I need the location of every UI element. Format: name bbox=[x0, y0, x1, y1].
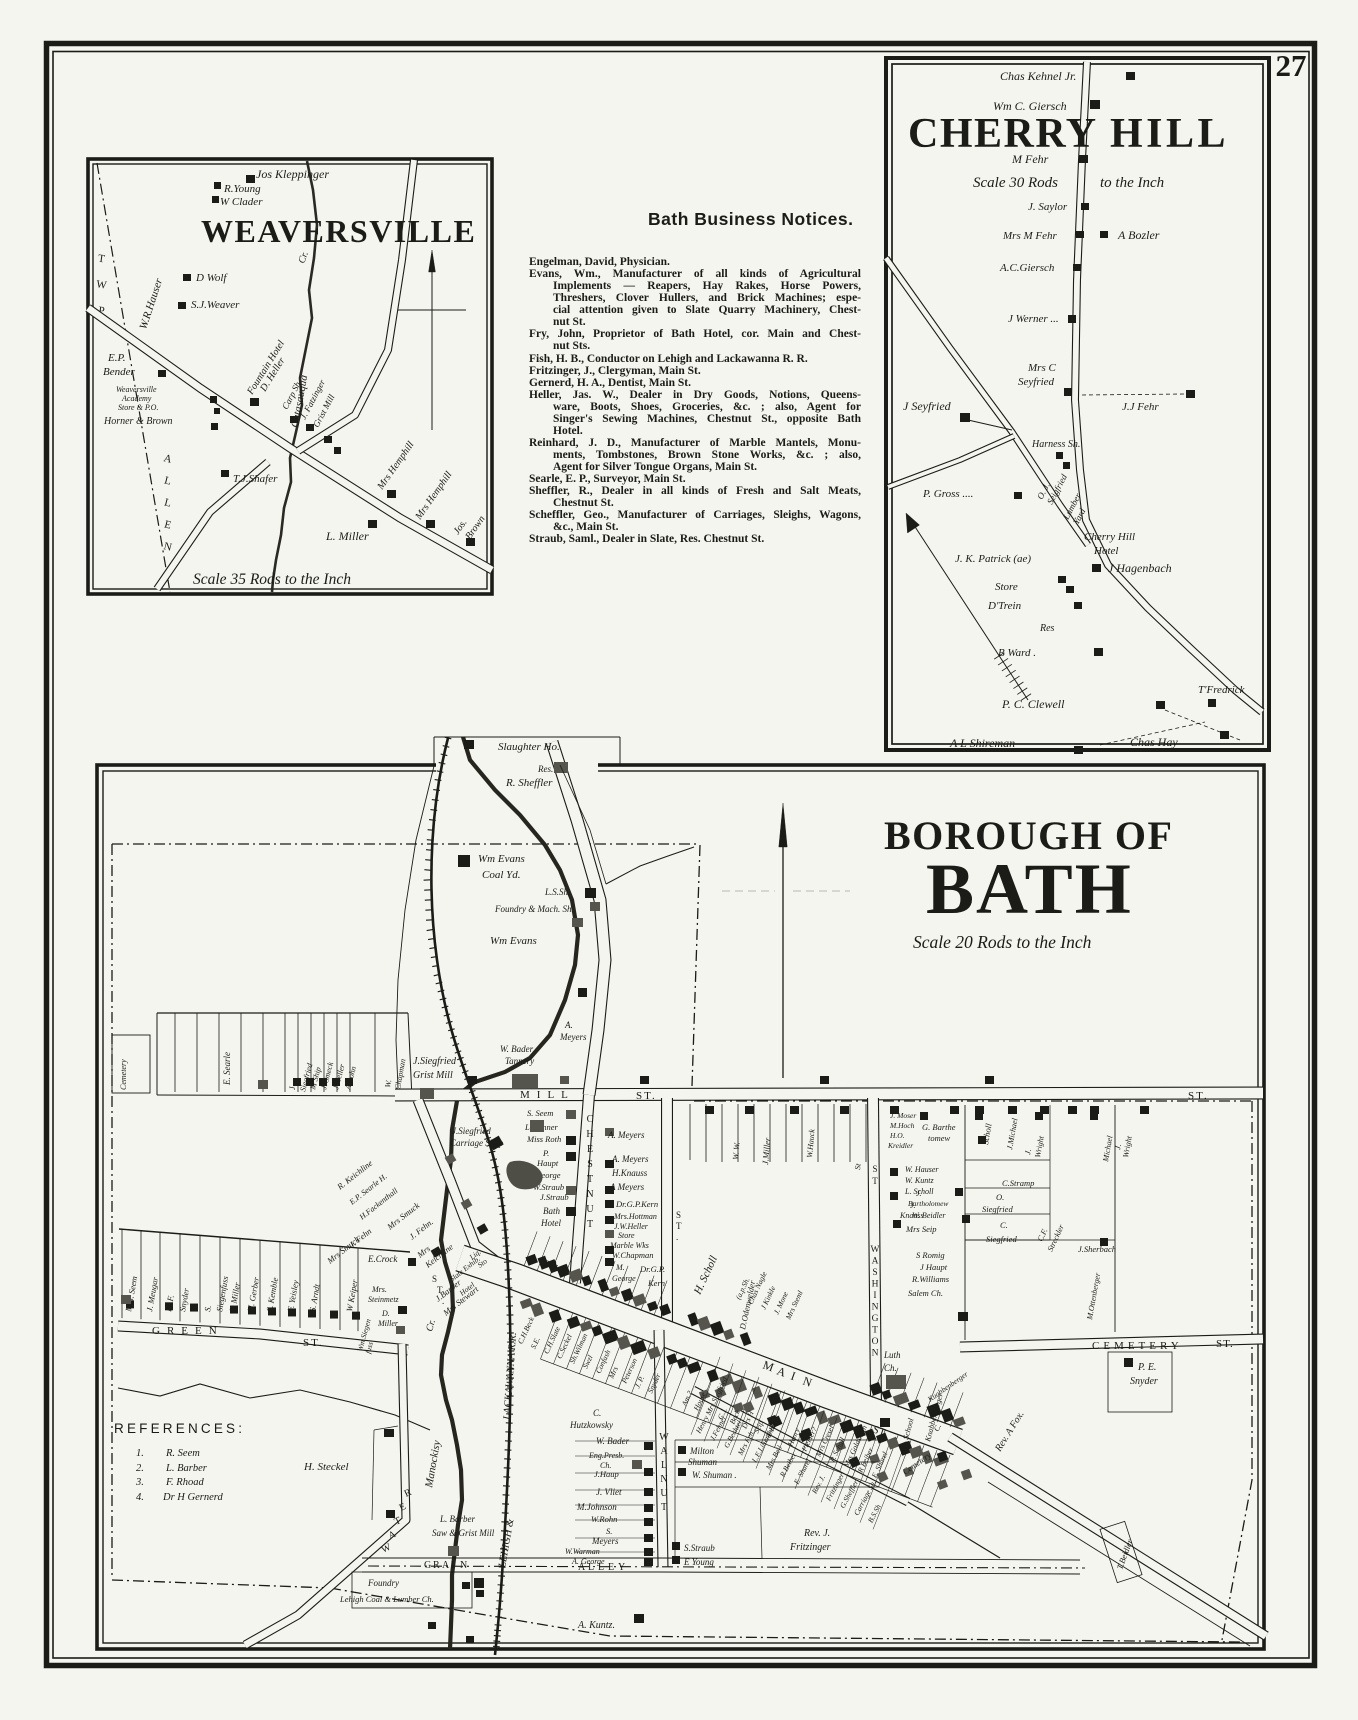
svg-text:Fritzinger: Fritzinger bbox=[789, 1542, 831, 1553]
svg-text:Eng.Presb.: Eng.Presb. bbox=[588, 1451, 624, 1460]
svg-text:J Werner ...: J Werner ... bbox=[1008, 313, 1059, 325]
svg-text:P.O.: P.O. bbox=[543, 1258, 559, 1268]
svg-text:S Romig: S Romig bbox=[916, 1250, 945, 1260]
svg-text:I: I bbox=[873, 1291, 876, 1301]
svg-text:G: G bbox=[424, 1560, 431, 1571]
svg-text:N: N bbox=[872, 1349, 879, 1359]
svg-text:E Young: E Young bbox=[683, 1557, 714, 1567]
svg-text:CEMETERY: CEMETERY bbox=[1092, 1340, 1183, 1352]
svg-text:E.Crock: E.Crock bbox=[367, 1254, 398, 1264]
svg-text:Marble Wks: Marble Wks bbox=[609, 1241, 649, 1250]
svg-text:Milton: Milton bbox=[689, 1446, 714, 1456]
svg-text:L. Barber: L. Barber bbox=[165, 1463, 208, 1474]
svg-text:A.C.Giersch: A.C.Giersch bbox=[999, 262, 1055, 274]
svg-text:MILL: MILL bbox=[520, 1089, 575, 1101]
svg-text:Haupt: Haupt bbox=[536, 1158, 559, 1168]
svg-text:W: W bbox=[659, 1432, 669, 1443]
svg-text:Mrs C: Mrs C bbox=[1027, 362, 1056, 374]
svg-text:O: O bbox=[872, 1337, 879, 1347]
svg-text:T: T bbox=[676, 1221, 682, 1231]
svg-text:Store: Store bbox=[995, 581, 1018, 593]
svg-text:R.Young: R.Young bbox=[223, 183, 261, 195]
svg-text:Weaversville: Weaversville bbox=[116, 385, 157, 394]
svg-text:A Bozler: A Bozler bbox=[1117, 228, 1160, 242]
svg-text:3.: 3. bbox=[135, 1477, 144, 1488]
svg-text:Cherry Hill: Cherry Hill bbox=[1084, 531, 1135, 543]
svg-text:W.Warman: W.Warman bbox=[565, 1547, 600, 1556]
svg-text:Slaughter Ho.: Slaughter Ho. bbox=[498, 741, 560, 753]
svg-text:D Wolf: D Wolf bbox=[195, 272, 228, 284]
svg-text:27: 27 bbox=[1276, 48, 1307, 83]
svg-text:U: U bbox=[660, 1488, 668, 1499]
svg-text:Res: Res bbox=[1039, 623, 1055, 634]
svg-text:P. E.: P. E. bbox=[1137, 1362, 1156, 1373]
svg-text:W. Beidler: W. Beidler bbox=[912, 1211, 946, 1220]
svg-text:ST.: ST. bbox=[303, 1337, 324, 1349]
svg-text:Foundry & Mach. Sh.: Foundry & Mach. Sh. bbox=[494, 904, 574, 914]
svg-text:D.: D. bbox=[381, 1309, 390, 1318]
svg-text:J. Moser: J. Moser bbox=[890, 1111, 916, 1120]
svg-text:Shuman: Shuman bbox=[688, 1457, 717, 1467]
svg-text:Wm Evans: Wm Evans bbox=[490, 935, 537, 947]
svg-text:W. Hauser: W. Hauser bbox=[905, 1165, 939, 1174]
svg-text:George: George bbox=[612, 1274, 636, 1283]
svg-text:J.Siegfried: J.Siegfried bbox=[413, 1056, 457, 1067]
svg-text:T: T bbox=[587, 1219, 593, 1230]
svg-text:E.P.: E.P. bbox=[107, 352, 126, 364]
svg-text:H: H bbox=[586, 1129, 593, 1140]
svg-text:Bartholomew: Bartholomew bbox=[908, 1199, 948, 1208]
svg-text:A: A bbox=[872, 1257, 879, 1267]
svg-text:J Seyfried: J Seyfried bbox=[903, 399, 952, 413]
svg-text:T: T bbox=[872, 1326, 878, 1336]
svg-text:W. Bader: W. Bader bbox=[500, 1044, 534, 1054]
svg-text:W Clader: W Clader bbox=[220, 196, 263, 208]
svg-text:ST.: ST. bbox=[636, 1090, 657, 1102]
svg-text:A Meyers: A Meyers bbox=[609, 1182, 645, 1192]
svg-text:T.J.Shafer: T.J.Shafer bbox=[233, 473, 278, 485]
svg-text:Mrs M Fehr: Mrs M Fehr bbox=[1002, 230, 1057, 242]
svg-text:Wm Evans: Wm Evans bbox=[478, 853, 525, 865]
svg-text:W. Bader: W. Bader bbox=[596, 1436, 630, 1446]
svg-text:J Hagenbach: J Hagenbach bbox=[1108, 561, 1172, 575]
svg-text:N: N bbox=[586, 1189, 593, 1200]
svg-text:Mrs.Hottman: Mrs.Hottman bbox=[613, 1212, 657, 1221]
svg-text:C.Stramp: C.Stramp bbox=[1002, 1178, 1034, 1188]
svg-text:G. Barthe: G. Barthe bbox=[922, 1122, 956, 1132]
svg-text:Kern: Kern bbox=[647, 1278, 665, 1288]
svg-text:E. Searle: E. Searle bbox=[222, 1052, 232, 1086]
svg-text:S.Straub: S.Straub bbox=[684, 1543, 715, 1553]
svg-text:Kreidler: Kreidler bbox=[887, 1141, 913, 1150]
svg-text:Hutzkowsky: Hutzkowsky bbox=[569, 1420, 613, 1430]
svg-text:Rev. J.: Rev. J. bbox=[803, 1528, 830, 1539]
svg-text:Bath: Bath bbox=[543, 1206, 560, 1216]
svg-text:ST.: ST. bbox=[1188, 1090, 1209, 1102]
svg-text:H. Steckel: H. Steckel bbox=[303, 1461, 349, 1473]
svg-text:Grist Mill: Grist Mill bbox=[413, 1070, 453, 1081]
svg-text:J.: J. bbox=[916, 1189, 922, 1198]
svg-text:J.Haup: J.Haup bbox=[594, 1469, 619, 1479]
svg-text:W. W.: W. W. bbox=[731, 1142, 742, 1161]
svg-text:J. Saylor: J. Saylor bbox=[1028, 201, 1068, 213]
svg-text:Horner & Brown: Horner & Brown bbox=[103, 416, 173, 427]
svg-text:Saw & Grist Mill: Saw & Grist Mill bbox=[432, 1528, 495, 1538]
svg-text:J. K. Patrick (ae): J. K. Patrick (ae) bbox=[955, 553, 1031, 565]
svg-text:S. Seem: S. Seem bbox=[527, 1108, 553, 1118]
svg-text:T: T bbox=[661, 1502, 667, 1513]
svg-text:W. Kuntz: W. Kuntz bbox=[905, 1176, 934, 1185]
svg-text:L: L bbox=[598, 1562, 604, 1573]
svg-text:Res.: Res. bbox=[537, 764, 553, 774]
svg-text:A. Meyers: A. Meyers bbox=[611, 1154, 649, 1164]
svg-text:C.: C. bbox=[593, 1408, 601, 1418]
svg-text:A.: A. bbox=[564, 1020, 573, 1030]
svg-text:W.Chapman: W.Chapman bbox=[612, 1250, 653, 1260]
svg-text:R: R bbox=[433, 1560, 440, 1571]
svg-text:Academy: Academy bbox=[121, 394, 152, 403]
svg-text:REFERENCES:: REFERENCES: bbox=[114, 1421, 245, 1436]
svg-text:Hotel: Hotel bbox=[540, 1218, 561, 1228]
svg-text:R. Seem: R. Seem bbox=[165, 1448, 200, 1459]
svg-text:N: N bbox=[660, 1474, 667, 1485]
svg-text:T: T bbox=[587, 1174, 593, 1185]
svg-text:Foundry: Foundry bbox=[367, 1578, 399, 1588]
svg-text:Miller: Miller bbox=[377, 1319, 399, 1328]
svg-text:Siegfried: Siegfried bbox=[986, 1234, 1017, 1244]
svg-text:Scale 35 Rods to the Inch: Scale 35 Rods to the Inch bbox=[193, 571, 351, 588]
svg-text:Salem Ch.: Salem Ch. bbox=[908, 1288, 943, 1298]
svg-text:D'Trein: D'Trein bbox=[987, 600, 1022, 612]
svg-text:E: E bbox=[608, 1562, 614, 1573]
svg-text:Meyers: Meyers bbox=[591, 1536, 619, 1546]
svg-text:R. Sheffler: R. Sheffler bbox=[505, 777, 553, 789]
svg-text:Tannery: Tannery bbox=[505, 1056, 534, 1066]
svg-text:1.: 1. bbox=[136, 1448, 144, 1459]
svg-text:S: S bbox=[872, 1268, 877, 1278]
svg-text:J.W.Heller: J.W.Heller bbox=[614, 1222, 649, 1231]
svg-text:Harness Sh.: Harness Sh. bbox=[1031, 439, 1080, 450]
svg-text:Luth: Luth bbox=[883, 1350, 901, 1360]
svg-text:P. C. Clewell: P. C. Clewell bbox=[1001, 697, 1065, 711]
svg-text:J Haupt: J Haupt bbox=[920, 1262, 948, 1272]
svg-text:A: A bbox=[442, 1560, 450, 1571]
svg-text:Y: Y bbox=[618, 1562, 625, 1573]
svg-text:L.S.Sh.: L.S.Sh. bbox=[544, 887, 570, 897]
svg-text:ST.: ST. bbox=[1216, 1338, 1234, 1350]
svg-text:Scale 30 Rods: Scale 30 Rods bbox=[973, 175, 1058, 191]
svg-text:W.Rohn: W.Rohn bbox=[591, 1514, 617, 1524]
svg-text:H.Knauss: H.Knauss bbox=[611, 1168, 648, 1178]
svg-text:Store & P.O.: Store & P.O. bbox=[118, 403, 158, 412]
svg-text:J.Straub: J.Straub bbox=[540, 1192, 569, 1202]
svg-text:I: I bbox=[451, 1560, 454, 1571]
svg-text:A: A bbox=[578, 1562, 586, 1573]
svg-text:Siegfried: Siegfried bbox=[982, 1204, 1013, 1214]
svg-text:to the Inch: to the Inch bbox=[1100, 175, 1164, 191]
svg-text:A. Meyers: A. Meyers bbox=[607, 1130, 645, 1140]
svg-text:L: L bbox=[661, 1460, 667, 1471]
svg-text:Dr H Gernerd: Dr H Gernerd bbox=[162, 1492, 223, 1503]
svg-text:.: . bbox=[676, 1232, 678, 1242]
svg-text:L: L bbox=[588, 1562, 594, 1573]
svg-text:J.Siegfried: J.Siegfried bbox=[452, 1126, 491, 1136]
svg-text:T'Fredrick: T'Fredrick bbox=[1198, 684, 1246, 696]
svg-text:WEAVERSVILLE: WEAVERSVILLE bbox=[201, 213, 476, 249]
svg-text:M.Hoch: M.Hoch bbox=[889, 1121, 915, 1130]
svg-text:P.: P. bbox=[542, 1148, 549, 1158]
svg-text:S: S bbox=[676, 1210, 681, 1220]
svg-text:Coal Yd.: Coal Yd. bbox=[482, 869, 521, 881]
svg-text:G: G bbox=[872, 1314, 879, 1324]
svg-text:Lehigh Coal & Lumber Ch.: Lehigh Coal & Lumber Ch. bbox=[339, 1594, 434, 1604]
svg-text:H.O.: H.O. bbox=[889, 1131, 905, 1140]
svg-text:L. Miller: L. Miller bbox=[325, 529, 369, 543]
svg-text:C: C bbox=[587, 1114, 594, 1125]
svg-text:Hotel: Hotel bbox=[1093, 545, 1118, 557]
svg-text:Chas Hay: Chas Hay bbox=[1130, 735, 1178, 749]
svg-text:BATH: BATH bbox=[926, 849, 1133, 929]
svg-text:O.: O. bbox=[996, 1192, 1004, 1202]
svg-text:Meyers: Meyers bbox=[559, 1032, 587, 1042]
svg-text:Miss Roth: Miss Roth bbox=[526, 1134, 561, 1144]
svg-text:M.: M. bbox=[615, 1263, 625, 1272]
svg-text:S: S bbox=[432, 1274, 437, 1284]
svg-text:A: A bbox=[660, 1446, 668, 1457]
svg-text:W: W bbox=[871, 1245, 880, 1255]
svg-text:Snyder: Snyder bbox=[1130, 1376, 1158, 1387]
svg-text:J.Sherbach: J.Sherbach bbox=[1078, 1244, 1116, 1254]
svg-text:Chas Kehnel Jr.: Chas Kehnel Jr. bbox=[1000, 69, 1076, 83]
svg-text:Steinmetz: Steinmetz bbox=[368, 1295, 400, 1304]
svg-text:W.: W. bbox=[383, 1079, 393, 1088]
svg-text:M.Johnson: M.Johnson bbox=[576, 1502, 617, 1512]
svg-text:4.: 4. bbox=[136, 1492, 144, 1503]
svg-text:M Fehr: M Fehr bbox=[1011, 152, 1049, 166]
svg-text:L. Barber: L. Barber bbox=[439, 1514, 476, 1524]
svg-text:GREEN: GREEN bbox=[152, 1325, 224, 1337]
svg-text:H: H bbox=[872, 1280, 879, 1290]
svg-text:Dr.G.P.Kern: Dr.G.P.Kern bbox=[615, 1199, 658, 1209]
svg-text:Jos Kleppinger: Jos Kleppinger bbox=[256, 167, 329, 181]
svg-text:HILL: HILL bbox=[1110, 111, 1229, 157]
svg-text:S: S bbox=[587, 1159, 593, 1170]
svg-text:E: E bbox=[587, 1144, 593, 1155]
svg-text:Wm C. Giersch: Wm C. Giersch bbox=[993, 99, 1067, 113]
svg-text:Dr.G.P.: Dr.G.P. bbox=[639, 1264, 665, 1274]
svg-text:U: U bbox=[586, 1204, 594, 1215]
svg-text:Seyfried: Seyfried bbox=[1018, 376, 1055, 388]
svg-text:2.: 2. bbox=[136, 1463, 144, 1474]
svg-text:Bender: Bender bbox=[103, 366, 135, 378]
svg-text:Mrs Seip: Mrs Seip bbox=[905, 1224, 936, 1234]
svg-text:S.: S. bbox=[606, 1526, 612, 1536]
svg-text:B Ward .: B Ward . bbox=[998, 647, 1036, 659]
svg-text:P. Gross ....: P. Gross .... bbox=[922, 488, 973, 500]
svg-text:Scale 20 Rods to the Inch: Scale 20 Rods to the Inch bbox=[913, 932, 1092, 952]
svg-text:Mrs.: Mrs. bbox=[371, 1285, 387, 1294]
svg-text:T: T bbox=[872, 1176, 878, 1186]
svg-text:W. Shuman .: W. Shuman . bbox=[692, 1470, 737, 1480]
svg-text:C.: C. bbox=[1000, 1220, 1008, 1230]
svg-text:N: N bbox=[872, 1303, 879, 1313]
svg-text:J. Vliet: J. Vliet bbox=[596, 1487, 622, 1497]
svg-text:Ch.: Ch. bbox=[884, 1363, 897, 1373]
svg-text:A. Kuntz.: A. Kuntz. bbox=[577, 1620, 615, 1631]
svg-text:A L Shireman: A L Shireman bbox=[949, 736, 1015, 750]
svg-text:S: S bbox=[872, 1164, 877, 1174]
svg-text:F. Rhoad: F. Rhoad bbox=[165, 1477, 204, 1488]
svg-text:R.Williams: R.Williams bbox=[911, 1274, 950, 1284]
svg-text:Cemetery: Cemetery bbox=[119, 1059, 128, 1090]
svg-text:CHERRY: CHERRY bbox=[908, 111, 1098, 157]
svg-text:J.J Fehr: J.J Fehr bbox=[1122, 401, 1159, 413]
svg-text:tomew: tomew bbox=[928, 1133, 951, 1143]
svg-text:Store: Store bbox=[618, 1231, 635, 1240]
svg-text:S.J.Weaver: S.J.Weaver bbox=[191, 299, 240, 311]
svg-text:N: N bbox=[460, 1560, 467, 1571]
